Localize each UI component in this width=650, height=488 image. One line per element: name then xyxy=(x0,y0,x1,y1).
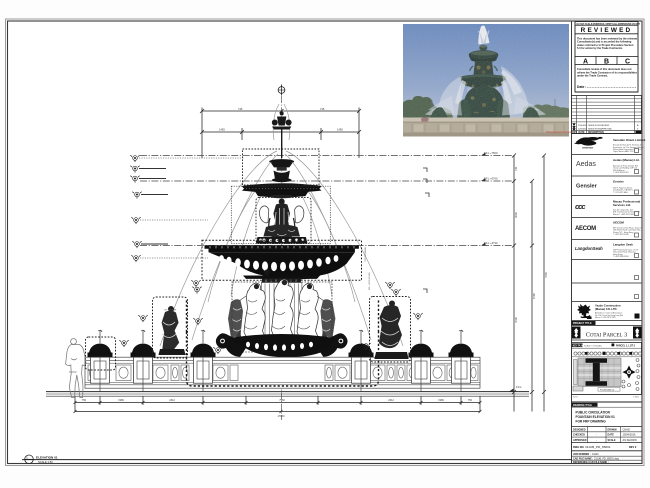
svg-text:6760: 6760 xyxy=(532,293,536,299)
svg-text:Gensler: Gensler xyxy=(613,180,625,184)
svg-text:FOR FRP DRAWING: FOR FRP DRAWING xyxy=(576,419,607,423)
svg-text:15/04/2016: 15/04/2016 xyxy=(623,433,637,437)
svg-text:31123: 31123 xyxy=(592,453,599,456)
svg-text:Yaubo Construction: Yaubo Construction xyxy=(595,304,621,308)
svg-text:Taipa, Macau SAR, P.R.C.: Taipa, Macau SAR, P.R.C. xyxy=(613,150,636,153)
svg-text:TYP. SIMILAR: TYP. SIMILAR xyxy=(164,308,177,311)
svg-text:COTAI PARCEL 3: COTAI PARCEL 3 xyxy=(586,332,628,339)
svg-text:LangdonSeah: LangdonSeah xyxy=(575,246,603,251)
svg-text:ELEVATION 01: ELEVATION 01 xyxy=(36,455,58,459)
svg-text:Gensler: Gensler xyxy=(576,184,598,190)
svg-text:750: 750 xyxy=(468,399,473,402)
svg-text:Langdon Seah: Langdon Seah xyxy=(613,243,633,247)
svg-text:1980: 1980 xyxy=(118,399,124,402)
svg-text:Venetian Orient Limited: Venetian Orient Limited xyxy=(613,138,646,142)
svg-text:VENETIAN: VENETIAN xyxy=(582,148,593,150)
svg-text:Aedas: Aedas xyxy=(576,161,596,168)
svg-text:17850: 17850 xyxy=(278,415,286,418)
svg-text:AECOM: AECOM xyxy=(613,221,624,225)
svg-text:ISSUE FOR REVIEW: ISSUE FOR REVIEW xyxy=(588,125,610,127)
svg-text:T +853 2833 1023: T +853 2833 1023 xyxy=(613,172,628,174)
svg-text:JOB NUMBER :: JOB NUMBER : xyxy=(573,453,591,456)
svg-text:Macau T +853 2871 5622: Macau T +853 2871 5622 xyxy=(613,214,635,216)
svg-text:Aedas (Macau) Ltd.: Aedas (Macau) Ltd. xyxy=(613,158,640,162)
svg-text:PROJECT TITLE: PROJECT TITLE xyxy=(573,322,592,325)
svg-text:T +852 3922 9000: T +852 3922 9000 xyxy=(613,234,628,236)
svg-text:CHAD: CHAD xyxy=(623,427,630,431)
svg-text:©FontainesConcorde: ©FontainesConcorde xyxy=(546,130,573,134)
svg-text:Macau T +853 2875 3323: Macau T +853 2875 3323 xyxy=(595,317,615,319)
svg-text:SCALE: SCALE xyxy=(608,439,617,442)
svg-text:FOUNTAIN 04: FOUNTAIN 04 xyxy=(600,388,615,391)
svg-text:CHECKED: CHECKED xyxy=(573,434,585,437)
svg-text:2030: 2030 xyxy=(514,212,518,218)
svg-text:F.F.L +6760: F.F.L +6760 xyxy=(484,176,498,180)
svg-text:FFL +4730 LEVEL: FFL +4730 LEVEL xyxy=(369,271,371,290)
svg-text:2312: 2312 xyxy=(388,399,394,402)
svg-text:SCALE 1:7500(A1): SCALE 1:7500(A1) xyxy=(584,344,602,347)
svg-text:REFERENCE CAD FILE NAME :: REFERENCE CAD FILE NAME : xyxy=(573,461,609,464)
svg-text:REV 0: REV 0 xyxy=(629,446,637,449)
svg-text:DWG NO.: DWG NO. xyxy=(573,446,585,449)
svg-text:APPROVED: APPROVED xyxy=(573,439,587,442)
svg-text:1455: 1455 xyxy=(337,128,343,132)
svg-text:745: 745 xyxy=(238,107,243,111)
svg-text:745: 745 xyxy=(320,107,325,111)
svg-text:1455: 1455 xyxy=(219,128,225,132)
svg-text:1980: 1980 xyxy=(438,399,444,402)
svg-text:REVIEWED: REVIEWED xyxy=(581,27,633,34)
svg-text:T +852 2830 3500: T +852 2830 3500 xyxy=(613,256,628,258)
svg-text:DATE: DATE xyxy=(608,434,615,437)
svg-text:7500: 7500 xyxy=(544,272,548,278)
svg-text:12/04/16: 12/04/16 xyxy=(578,128,587,130)
svg-text:2312: 2312 xyxy=(169,399,175,402)
svg-text:7560: 7560 xyxy=(279,399,285,402)
svg-text:T 1 213.327.3600: T 1 213.327.3600 xyxy=(613,192,628,194)
svg-text:TOP OF BASIN: TOP OF BASIN xyxy=(364,246,367,262)
svg-text:PARCEL 1, LOT 3: PARCEL 1, LOT 3 xyxy=(616,344,636,347)
svg-text:4730: 4730 xyxy=(514,317,518,323)
svg-text:1:7500: 1:7500 xyxy=(633,396,639,398)
svg-text:AS SHOWN: AS SHOWN xyxy=(623,438,637,442)
svg-text:PUBLIC CIRCULATION: PUBLIC CIRCULATION xyxy=(576,411,611,415)
svg-text:DRAWN: DRAWN xyxy=(608,428,617,431)
svg-text:F.F.L.: F.F.L. xyxy=(516,385,523,389)
svg-text:DESIGNED: DESIGNED xyxy=(573,428,586,431)
svg-text:5.4 for action by the Trade Co: 5.4 for action by the Trade Contractor. xyxy=(577,46,623,50)
svg-text:ISSUE FOR APPROVAL: ISSUE FOR APPROVAL xyxy=(588,127,613,130)
svg-text:15/04/16: 15/04/16 xyxy=(578,125,587,127)
svg-text:-: - xyxy=(596,439,597,442)
svg-text:under the Trade Contract.: under the Trade Contract. xyxy=(577,73,608,77)
svg-text:(Macau) CO. LTD.: (Macau) CO. LTD. xyxy=(595,307,617,311)
svg-text:AECOM: AECOM xyxy=(575,226,596,232)
svg-text:-: - xyxy=(596,434,597,437)
svg-text:DRAWING TITLE: DRAWING TITLE xyxy=(573,404,592,407)
svg-text:B: B xyxy=(604,58,609,65)
svg-text:Services Ltd.: Services Ltd. xyxy=(613,203,631,207)
svg-text:N.T.S.: N.T.S. xyxy=(573,396,579,398)
svg-text:740: 740 xyxy=(514,166,518,171)
svg-text:KEY PLAN: KEY PLAN xyxy=(573,344,585,347)
svg-text:311UB_PD_85001: 311UB_PD_85001 xyxy=(585,445,611,449)
svg-text:FOUNTAIN ELEVATION 01: FOUNTAIN ELEVATION 01 xyxy=(576,415,616,419)
svg-text:C: C xyxy=(625,58,630,65)
svg-text:F.F.L +4730: F.F.L +4730 xyxy=(484,241,498,245)
svg-text:A: A xyxy=(583,58,588,65)
svg-text:Date :: Date : xyxy=(577,85,586,89)
svg-text:F.F.L +7500: F.F.L +7500 xyxy=(484,151,498,155)
svg-text:SCALE 1:50: SCALE 1:50 xyxy=(38,460,53,464)
svg-text:750: 750 xyxy=(82,399,87,402)
